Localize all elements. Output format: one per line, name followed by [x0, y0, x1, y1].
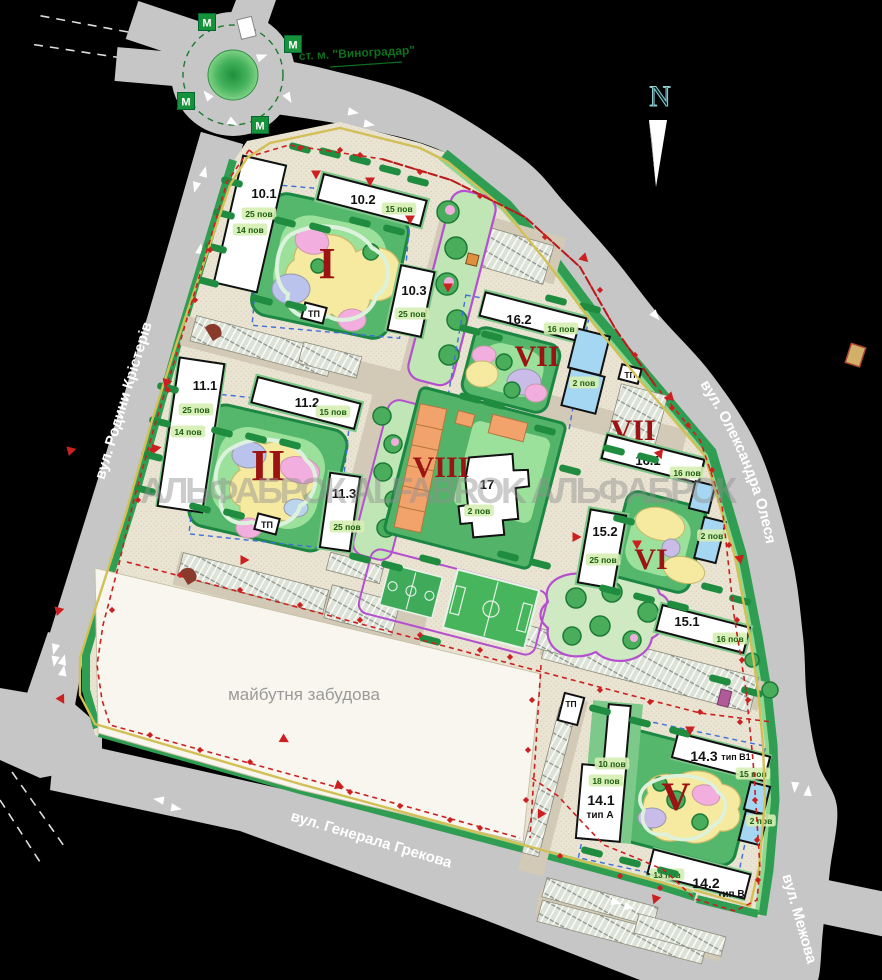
svg-text:25 пов: 25 пов: [398, 309, 425, 319]
svg-text:15 пов: 15 пов: [739, 769, 766, 779]
svg-text:16.2: 16.2: [506, 312, 531, 327]
svg-text:тип А: тип А: [586, 810, 613, 821]
svg-text:25 пов: 25 пов: [333, 522, 360, 532]
svg-text:10 пов: 10 пов: [598, 759, 625, 769]
svg-text:ТП: ТП: [261, 520, 273, 530]
svg-text:15.1: 15.1: [674, 614, 699, 629]
svg-text:14 пов: 14 пов: [236, 225, 263, 235]
svg-text:тип В1: тип В1: [721, 752, 750, 762]
svg-text:10.2: 10.2: [350, 192, 375, 207]
svg-text:ТП: ТП: [565, 699, 576, 709]
svg-text:25 пов: 25 пов: [245, 209, 272, 219]
svg-text:16 пов: 16 пов: [716, 634, 743, 644]
svg-text:14.3: 14.3: [690, 748, 717, 764]
svg-text:25 пов: 25 пов: [589, 555, 616, 565]
svg-text:VI: VI: [634, 543, 667, 576]
svg-text:М: М: [202, 18, 211, 30]
svg-text:15.2: 15.2: [592, 524, 617, 539]
svg-text:14 пов: 14 пов: [174, 427, 201, 437]
svg-text:25 пов: 25 пов: [182, 405, 209, 415]
svg-text:14.2: 14.2: [692, 875, 719, 891]
svg-text:14.1: 14.1: [587, 792, 614, 808]
svg-text:АЛЬФАБРОК ALFABROK АЛЬФАБРОК: АЛЬФАБРОК ALFABROK АЛЬФАБРОК: [140, 470, 738, 511]
svg-text:VII: VII: [514, 340, 559, 373]
svg-text:ТП: ТП: [308, 309, 320, 319]
svg-text:М: М: [181, 97, 190, 109]
svg-text:майбутня забудова: майбутня забудова: [228, 685, 380, 704]
svg-text:15 пов: 15 пов: [385, 204, 412, 214]
svg-text:N: N: [649, 80, 671, 113]
svg-text:16 пов: 16 пов: [547, 324, 574, 334]
svg-text:I: I: [318, 239, 335, 288]
svg-text:2 пов: 2 пов: [573, 378, 596, 388]
svg-text:11.2: 11.2: [295, 395, 320, 410]
svg-text:11.1: 11.1: [193, 378, 218, 393]
svg-text:2 пов: 2 пов: [701, 531, 724, 541]
svg-text:V: V: [662, 774, 691, 819]
svg-text:10.3: 10.3: [401, 283, 426, 298]
svg-text:2 пов: 2 пов: [750, 816, 773, 826]
svg-text:18 пов: 18 пов: [592, 776, 619, 786]
svg-text:15 пов: 15 пов: [319, 407, 346, 417]
svg-text:М: М: [288, 40, 297, 52]
svg-text:10.1: 10.1: [251, 186, 276, 201]
svg-text:М: М: [255, 121, 264, 133]
